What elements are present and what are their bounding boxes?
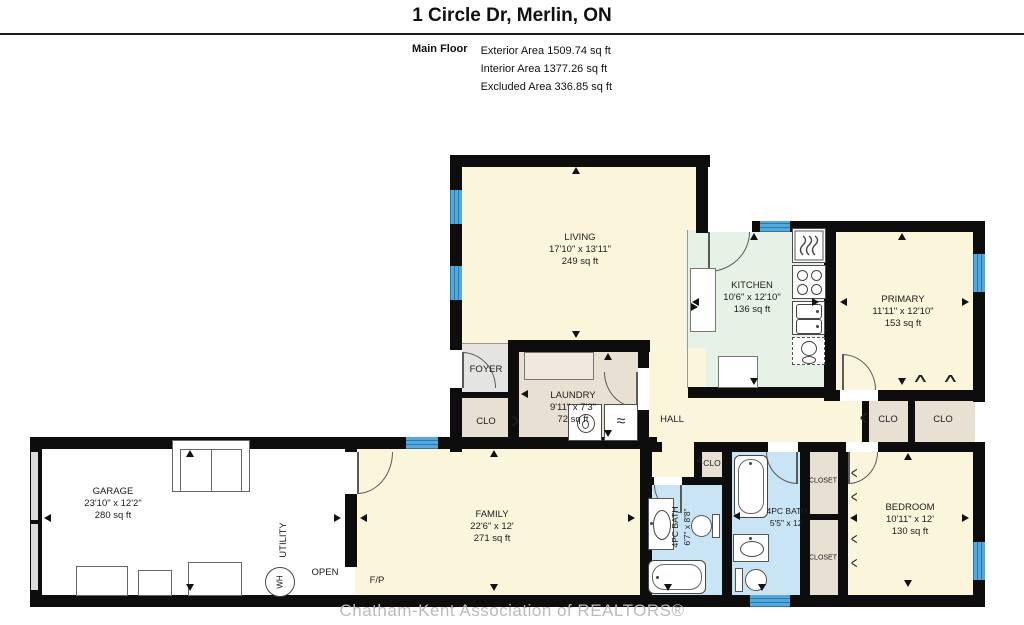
room-name: GARAGE [84, 486, 141, 498]
window-family [406, 437, 438, 449]
room-label-laundry: LAUNDRY 9'11" x 7'3" 72 sq ft [550, 390, 596, 426]
wall-bedroom-top [878, 442, 985, 452]
measure-arrow [490, 584, 498, 591]
measure-arrow [604, 353, 612, 360]
bifold-door-icon: < [697, 454, 703, 471]
chevron-up-icon: ∧ [942, 371, 960, 385]
floor-stats: Main Floor Exterior Area 1509.74 sq ft I… [0, 42, 1024, 96]
bath2-toilet-tank [735, 568, 743, 592]
measure-arrow [572, 167, 580, 174]
chevron-left-icon: < [851, 465, 857, 483]
closet-label-primary-2: CLO [933, 414, 953, 426]
burner-icon [797, 270, 808, 281]
bifold-door-icon: ∧ [912, 372, 930, 384]
storage-box-2 [138, 570, 172, 596]
window-living-2 [450, 266, 462, 300]
bifold-door-icon: ∧ [942, 372, 960, 384]
stove-burners [794, 267, 825, 298]
storage-box-3 [188, 562, 242, 596]
chevron-left-icon: < [860, 405, 867, 430]
door-gap-bedroom [846, 442, 878, 452]
measure-arrow [750, 378, 758, 385]
room-label-foyer: FOYER [470, 364, 503, 376]
measure-arrow [962, 514, 969, 522]
room-label-bath2: 4PC BATH 5'5" x 12' [767, 505, 808, 529]
room-name: 4PC BATH [669, 507, 681, 548]
burner-icon [811, 284, 822, 295]
room-dims: 22'6" x 12' [470, 521, 513, 533]
header-divider [0, 33, 1024, 35]
closet-label-1: CLOSET [809, 477, 837, 486]
room-name: PRIMARY [872, 294, 933, 306]
excluded-area: Excluded Area 336.85 sq ft [481, 78, 612, 96]
dryer-wave-glyph: ≈ [617, 413, 626, 430]
chevron-right-icon: > [512, 408, 519, 433]
dishwasher-icon [792, 337, 825, 365]
measure-arrow [186, 450, 194, 457]
bath1-toilet-tank [712, 514, 720, 538]
foyer-living-boundary [458, 343, 510, 344]
bath2-vanity [733, 534, 769, 562]
room-name: HALL [660, 414, 684, 426]
room-label-bedroom: BEDROOM 10'11" x 12' 130 sq ft [885, 502, 934, 538]
kitchen-sink-icon [792, 301, 825, 335]
bifold-door-icon: < [860, 407, 867, 429]
room-name: FOYER [470, 364, 503, 376]
wall-bath2-top [722, 442, 768, 452]
measure-arrow [898, 378, 906, 385]
wall-bath1-bath2-divider [722, 452, 732, 597]
burner-icon [811, 270, 822, 281]
measure-arrow [521, 390, 528, 398]
closet-label: CLO [878, 414, 898, 426]
wall-closet-top [798, 442, 846, 452]
measure-arrow [692, 298, 699, 306]
door-gap-garage-family [345, 452, 357, 494]
floor-areas: Exterior Area 1509.74 sq ft Interior Are… [481, 42, 612, 96]
utility-label: UTILITY [278, 522, 290, 557]
wall-kitchen-bottom [688, 387, 828, 398]
wall-primary-right [973, 221, 985, 402]
counter-laundry [524, 352, 594, 380]
measure-arrow [490, 450, 498, 457]
wall-laundry-top [508, 340, 650, 352]
page-title: 1 Circle Dr, Merlin, ON [0, 5, 1024, 27]
water-heater-label: WH [276, 575, 285, 588]
room-area: 153 sq ft [872, 318, 933, 330]
sink-basin [796, 304, 822, 319]
room-area: 72 sq ft [550, 414, 596, 426]
room-name: LAUNDRY [550, 390, 596, 402]
sofa-divider [211, 450, 212, 492]
floor-label: Main Floor [412, 42, 468, 96]
room-name: 4PC BATH [767, 505, 808, 517]
room-name: FAMILY [470, 509, 513, 521]
room-label-family: FAMILY 22'6" x 12' 271 sq ft [470, 509, 513, 545]
fridge-coil-glyph [793, 229, 825, 262]
room-label-hall: HALL [660, 414, 684, 426]
window-bedroom [973, 542, 985, 580]
bifold-door-icon: < [851, 489, 857, 507]
sofa-icon [172, 440, 250, 492]
measure-arrow [455, 303, 462, 311]
open-text: OPEN [312, 567, 339, 579]
room-dims: 6'7" x 8'8" [681, 507, 693, 548]
wall-primary-closet-divider [908, 392, 915, 452]
bifold-door-icon: < [851, 531, 857, 549]
room-label-living: LIVING 17'10" x 13'11" 249 sq ft [549, 232, 611, 268]
wall-living-top [450, 155, 710, 167]
room-label-bath1: 4PC BATH 6'7" x 8'8" [669, 507, 693, 548]
utility-text: UTILITY [278, 522, 290, 557]
measure-arrow [758, 584, 766, 591]
closet-label: CLOSET [809, 554, 837, 563]
door-gap-entry [450, 350, 462, 388]
measure-arrow [840, 298, 847, 306]
measure-arrow [898, 233, 906, 240]
measure-arrow [604, 430, 612, 437]
garage-door-1 [31, 452, 38, 520]
door-gap-primary [840, 390, 878, 401]
fp-text: F/P [370, 575, 385, 587]
room-name: BEDROOM [885, 502, 934, 514]
closet-label: CLO [933, 414, 953, 426]
chevron-left-icon: < [697, 454, 703, 469]
room-label-kitchen: KITCHEN 10'6" x 12'10" 136 sq ft [723, 280, 780, 316]
measure-arrow [572, 331, 580, 338]
closet-label: CLO [703, 457, 720, 469]
fireplace-label: F/P [370, 575, 385, 587]
room-fill-bath1-vestibule [650, 447, 696, 481]
measure-arrow [628, 514, 635, 522]
stove-icon [792, 265, 826, 299]
door-gap-kitchen [708, 221, 752, 232]
room-dims: 10'11" x 12' [885, 514, 934, 526]
fridge-icon [792, 228, 826, 263]
bifold-door-icon: > [512, 410, 519, 432]
measure-arrow [334, 514, 341, 522]
chevron-left-icon: < [851, 555, 857, 573]
door-gap-laundry [638, 368, 649, 410]
closet-label: CLOSET [809, 477, 837, 486]
bath1-toilet-bowl [691, 515, 712, 537]
chevron-left-icon: < [851, 489, 857, 507]
measure-arrow [664, 584, 672, 591]
measure-arrow [44, 514, 51, 522]
bath2-tub-inner [738, 459, 764, 514]
measure-arrow [733, 512, 740, 520]
bath2-bathtub-icon [734, 455, 768, 518]
room-label-garage: GARAGE 23'10" x 12'2" 280 sq ft [84, 486, 141, 522]
closet-label-small: CLO [703, 457, 720, 469]
kitchen-living-boundary [687, 230, 688, 388]
room-dims: 9'11" x 7'3" [550, 402, 596, 414]
measure-arrow [904, 580, 912, 587]
door-gap-bath1 [654, 477, 682, 485]
room-dims: 11'11" x 12'10" [872, 306, 933, 318]
window-primary [973, 254, 985, 292]
wall-garage-family-top [30, 437, 657, 449]
measure-arrow [812, 298, 819, 306]
room-dims: 5'5" x 12' [767, 517, 808, 529]
room-area: 280 sq ft [84, 510, 141, 522]
measure-arrow [186, 584, 194, 591]
wall-bedroom-right [973, 442, 985, 605]
wall-closet-bedroom-divider [838, 452, 848, 595]
closet-label-primary-1: CLO [878, 414, 898, 426]
garage-door-2 [31, 524, 38, 590]
room-dims: 23'10" x 12'2" [84, 498, 141, 510]
measure-arrow [904, 453, 912, 460]
closet-label-2: CLOSET [809, 554, 837, 563]
bath1-tub-inner [652, 564, 702, 590]
window-kitchen [760, 221, 790, 232]
measure-arrow [360, 514, 367, 522]
storage-box-1 [76, 566, 128, 596]
room-area: 136 sq ft [723, 304, 780, 316]
sink-basin [796, 319, 822, 334]
chevron-up-icon: ∧ [912, 371, 930, 385]
door-gap-bath2 [768, 442, 798, 452]
room-dims: 10'6" x 12'10" [723, 292, 780, 304]
watermark: Chatham-Kent Association of REALTORS® [0, 601, 1024, 621]
room-name: LIVING [549, 232, 611, 244]
bifold-door-icon: < [851, 555, 857, 573]
room-label-primary: PRIMARY 11'11" x 12'10" 153 sq ft [872, 294, 933, 330]
closet-label-foyer: CLO [476, 416, 496, 428]
room-area: 249 sq ft [549, 256, 611, 268]
room-area: 271 sq ft [470, 533, 513, 545]
closet-label: CLO [476, 416, 496, 428]
chevron-left-icon: < [851, 531, 857, 549]
floor-plan-page: 1 Circle Dr, Merlin, ON Main Floor Exter… [0, 0, 1024, 625]
bifold-door-icon: < [851, 465, 857, 483]
room-name: KITCHEN [723, 280, 780, 292]
bath1-bathtub-icon [648, 560, 706, 594]
interior-area: Interior Area 1377.26 sq ft [481, 60, 612, 78]
room-dims: 17'10" x 13'11" [549, 244, 611, 256]
measure-arrow [962, 298, 969, 306]
water-heater-icon: WH [265, 567, 295, 597]
window-living-1 [450, 190, 462, 224]
hall-vestibule-opening [662, 442, 694, 452]
exterior-area: Exterior Area 1509.74 sq ft [481, 42, 612, 60]
burner-icon [797, 284, 808, 295]
measure-arrow [850, 514, 857, 522]
wall-foyer-closet-divider [452, 392, 512, 398]
room-area: 130 sq ft [885, 526, 934, 538]
measure-arrow [750, 233, 758, 240]
open-label: OPEN [312, 567, 339, 579]
